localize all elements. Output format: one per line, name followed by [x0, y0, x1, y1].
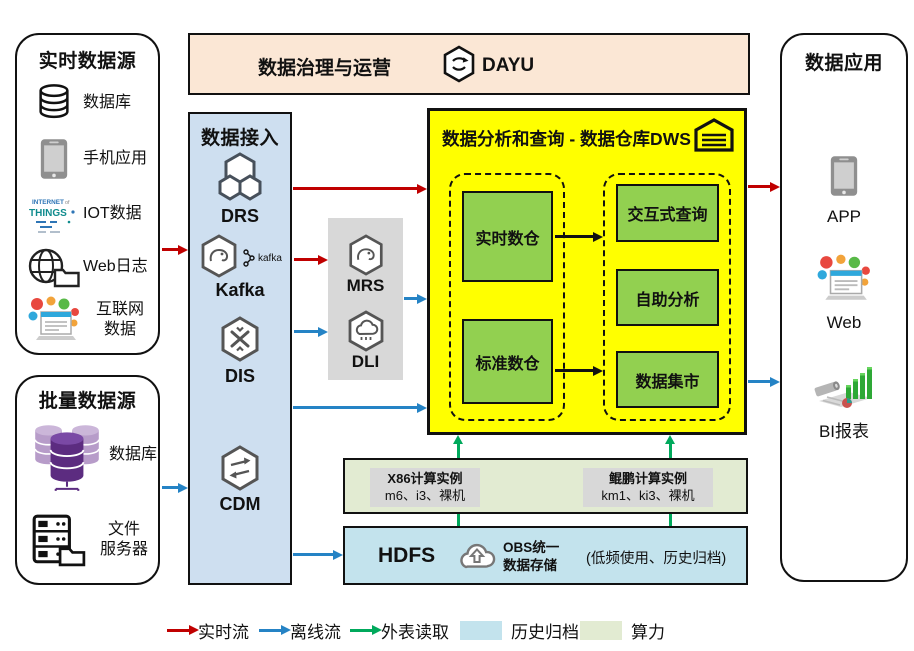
- list-item: INTERNET of THINGS IOT数据: [25, 189, 157, 239]
- source-label: 文件 服务器: [91, 520, 157, 560]
- dws-panel: 数据分析和查询 - 数据仓库DWS 实时数仓 标准数仓 交互式查询 自助分析 数…: [427, 108, 747, 435]
- batch-sources-panel: 批量数据源 数据库: [15, 375, 160, 585]
- legend-item-offline: 离线流: [259, 616, 341, 644]
- legend-label: 外表读取: [381, 618, 449, 643]
- dws-title: 数据分析和查询 - 数据仓库DWS: [442, 126, 691, 151]
- realtime-flow-arrow: [293, 187, 417, 190]
- mobile-phone-icon: [25, 137, 83, 181]
- offline-flow-arrow: [404, 297, 417, 300]
- source-label: 数据库: [83, 93, 131, 113]
- internal-flow-arrow: [555, 235, 593, 238]
- offline-flow-arrow: [748, 380, 770, 383]
- ingestion-title: 数据接入: [190, 123, 290, 150]
- middleware-panel: MRS DLI: [328, 218, 403, 380]
- external-read-arrow: [669, 444, 672, 458]
- offline-flow-arrow: [294, 330, 318, 333]
- legend-item-archive: 历史归档: [460, 616, 579, 644]
- dis-label: DIS: [190, 366, 290, 387]
- svg-text:INTERNET: INTERNET: [32, 199, 64, 206]
- compute-panel: X86计算实例 m6、i3、裸机 鲲鹏计算实例 km1、ki3、裸机: [343, 458, 748, 514]
- hdfs-label: HDFS: [378, 544, 435, 568]
- legend-label: 历史归档: [511, 618, 579, 643]
- offline-flow-arrow: [293, 406, 417, 409]
- dayu-icon: [442, 45, 476, 88]
- obs-label: OBS统一 数据存储: [503, 539, 559, 575]
- realtime-sources-panel: 实时数据源 数据库 手机应用: [15, 33, 160, 355]
- legend-label: 离线流: [290, 618, 341, 643]
- offline-arrow-sample: [259, 629, 281, 632]
- realtime-warehouse-box: 实时数仓: [462, 191, 553, 282]
- governance-banner: 数据治理与运营 DAYU: [188, 33, 750, 95]
- legend-item-external-read: 外表读取: [350, 616, 449, 644]
- list-item: 数据库: [25, 413, 157, 497]
- bi-report-icon: [782, 361, 906, 411]
- cdm-icon: [190, 444, 290, 492]
- database-icon: [25, 82, 83, 124]
- batch-sources-title: 批量数据源: [17, 386, 158, 413]
- kafka-logo-icon: [242, 248, 256, 268]
- source-label: 数据库: [109, 445, 157, 465]
- dli-icon: [328, 310, 403, 352]
- dayu-label: DAYU: [482, 55, 534, 77]
- external-read-arrow: [457, 444, 460, 458]
- kunpeng-instance-chip: 鲲鹏计算实例 km1、ki3、裸机: [583, 468, 713, 507]
- external-read-line: [669, 514, 672, 526]
- kafka-badge: kafka: [258, 253, 282, 264]
- internal-flow-arrow: [555, 369, 593, 372]
- internet-data-icon: [25, 295, 83, 345]
- web-icon: [782, 253, 906, 305]
- realtime-flow-arrow: [294, 258, 318, 261]
- drs-icon: [190, 152, 290, 204]
- realtime-sources-title: 实时数据源: [17, 46, 158, 73]
- svg-text:THINGS: THINGS: [29, 208, 67, 219]
- web-label: Web: [782, 313, 906, 333]
- governance-title: 数据治理与运营: [258, 53, 391, 80]
- cdm-label: CDM: [190, 494, 290, 515]
- svg-text:of: of: [65, 200, 70, 206]
- dli-label: DLI: [328, 352, 403, 372]
- list-item: 文件 服务器: [25, 505, 157, 575]
- list-item: Web日志: [25, 241, 157, 293]
- storage-panel: HDFS OBS统一 数据存储 (低频使用、历史归档): [343, 526, 748, 585]
- kafka-label: Kafka: [190, 280, 290, 301]
- ingestion-panel: 数据接入 DRS: [188, 112, 292, 585]
- self-service-analysis-box: 自助分析: [616, 269, 719, 326]
- compute-swatch: [580, 621, 622, 640]
- app-label: APP: [782, 207, 906, 227]
- legend-label: 实时流: [198, 618, 249, 643]
- list-item: 数据库: [25, 79, 157, 127]
- iot-wordcloud-icon: INTERNET of THINGS: [25, 192, 83, 236]
- instance-title: X86计算实例: [387, 471, 462, 488]
- applications-panel: 数据应用 APP Web: [780, 33, 908, 582]
- instance-detail: km1、ki3、裸机: [601, 488, 694, 505]
- realtime-arrow-sample: [167, 629, 189, 632]
- dis-icon: [190, 315, 290, 363]
- web-log-icon: [25, 245, 83, 289]
- purple-database-cluster-icon: [25, 418, 109, 492]
- external-read-line: [457, 514, 460, 526]
- source-label: 互联网 数据: [83, 300, 157, 340]
- bi-report-label: BI报表: [782, 417, 906, 442]
- drs-label: DRS: [190, 206, 290, 227]
- instance-detail: m6、i3、裸机: [385, 488, 465, 505]
- storage-note: (低频使用、历史归档): [586, 547, 726, 568]
- data-mart-box: 数据集市: [616, 351, 719, 408]
- mrs-icon: [328, 234, 403, 276]
- list-item: 互联网 数据: [25, 289, 157, 351]
- architecture-canvas: 数据治理与运营 DAYU 实时数据源 数据库: [0, 0, 914, 651]
- standard-warehouse-box: 标准数仓: [462, 319, 553, 404]
- obs-cloud-icon: [455, 540, 499, 579]
- legend-label: 算力: [631, 618, 665, 643]
- source-label: 手机应用: [83, 149, 147, 169]
- kafka-hexagon-icon: [199, 234, 239, 283]
- mrs-label: MRS: [328, 276, 403, 296]
- warehouse-icon: [692, 117, 736, 158]
- realtime-flow-arrow: [748, 185, 770, 188]
- app-icon: [782, 153, 906, 199]
- source-label: IOT数据: [83, 204, 142, 224]
- realtime-flow-arrow: [162, 248, 178, 251]
- archive-swatch: [460, 621, 502, 640]
- offline-flow-arrow: [293, 553, 333, 556]
- list-item: 手机应用: [25, 135, 157, 183]
- applications-title: 数据应用: [782, 48, 906, 75]
- x86-instance-chip: X86计算实例 m6、i3、裸机: [370, 468, 480, 507]
- source-label: Web日志: [83, 257, 148, 277]
- legend-item-realtime: 实时流: [167, 616, 249, 644]
- kafka-icon-group: kafka: [199, 236, 291, 280]
- external-read-arrow-sample: [350, 629, 372, 632]
- legend-item-compute: 算力: [580, 616, 665, 644]
- interactive-query-box: 交互式查询: [616, 184, 719, 242]
- file-server-icon: [25, 513, 91, 567]
- instance-title: 鲲鹏计算实例: [609, 471, 687, 488]
- offline-flow-arrow: [162, 486, 178, 489]
